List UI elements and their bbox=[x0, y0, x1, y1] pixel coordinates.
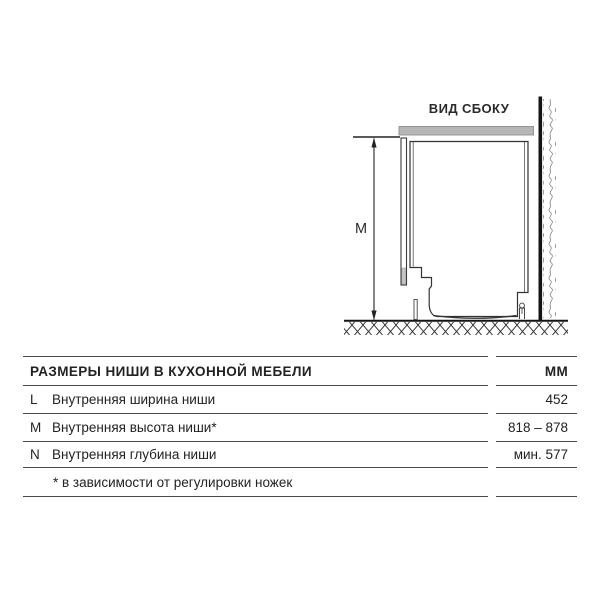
arrowhead-bottom bbox=[371, 311, 376, 321]
table-footnote-row: * в зависимости от регулировки ножек bbox=[23, 467, 577, 496]
front-foot bbox=[414, 300, 417, 320]
table-row-height: M Внутренняя высота ниши* 818 – 878 bbox=[23, 413, 577, 441]
side-view-diagram: ВИД СБОКУ M bbox=[0, 0, 600, 355]
row-value: мин. 577 bbox=[514, 447, 568, 462]
row-key: M bbox=[23, 420, 52, 435]
door-panel-bottom bbox=[402, 268, 406, 284]
wall-texture bbox=[543, 99, 556, 318]
table-row-depth: N Внутренняя глубина ниши мин. 577 bbox=[23, 441, 577, 467]
appliance-door-panel bbox=[401, 138, 407, 285]
row-label: Внутренняя ширина ниши bbox=[52, 392, 215, 407]
wall bbox=[539, 97, 543, 322]
rule-gap bbox=[488, 467, 496, 496]
row-key: L bbox=[23, 392, 52, 407]
countertop bbox=[399, 127, 534, 136]
rule-gap bbox=[488, 413, 496, 441]
table-bottom-rule bbox=[23, 496, 577, 497]
floor-hatch bbox=[344, 322, 568, 335]
diagram-title: ВИД СБОКУ bbox=[429, 101, 510, 116]
table-title: РАЗМЕРЫ НИШИ В КУХОННОЙ МЕБЕЛИ bbox=[23, 364, 312, 379]
footnote: * в зависимости от регулировки ножек bbox=[23, 475, 292, 490]
dimension-line-m bbox=[371, 138, 376, 320]
appliance-body bbox=[410, 142, 528, 317]
row-label: Внутренняя глубина ниши bbox=[52, 447, 216, 462]
table-row-width: L Внутренняя ширина ниши 452 bbox=[23, 385, 577, 413]
rule-gap bbox=[488, 385, 496, 413]
table-header-row: РАЗМЕРЫ НИШИ В КУХОННОЙ МЕБЕЛИ ММ bbox=[23, 356, 577, 385]
row-key: N bbox=[23, 447, 52, 462]
dimensions-table: РАЗМЕРЫ НИШИ В КУХОННОЙ МЕБЕЛИ ММ L Внут… bbox=[23, 356, 577, 497]
row-label: Внутренняя высота ниши* bbox=[52, 420, 217, 435]
rear-foot bbox=[520, 303, 525, 319]
rule-gap bbox=[488, 496, 496, 497]
arrowhead-top bbox=[371, 138, 376, 148]
manual-page: ВИД СБОКУ M bbox=[0, 0, 600, 600]
row-value: 818 – 878 bbox=[508, 420, 568, 435]
table-unit-header: ММ bbox=[545, 364, 568, 379]
row-value: 452 bbox=[545, 392, 568, 407]
rule-gap bbox=[488, 356, 496, 385]
rule-gap bbox=[488, 441, 496, 467]
dimension-m-label: M bbox=[355, 221, 367, 237]
